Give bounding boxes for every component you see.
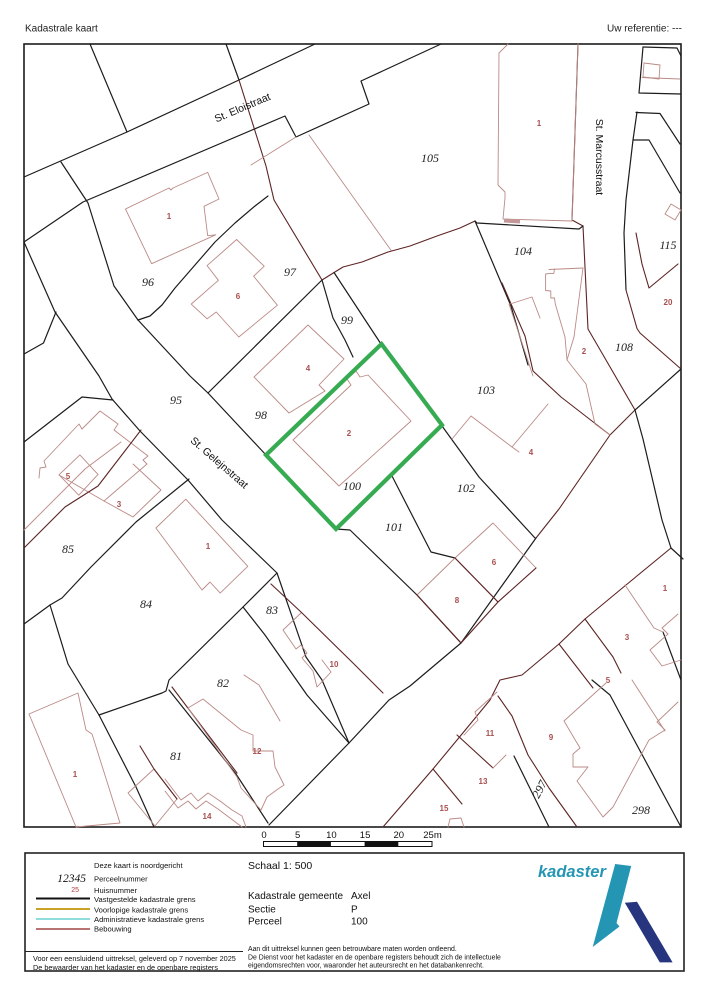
svg-text:115: 115 [659,238,676,252]
svg-text:Administratieve kadastrale gre: Administratieve kadastrale grens [94,915,204,924]
svg-text:108: 108 [615,340,633,354]
svg-text:Deze kaart is noordgericht: Deze kaart is noordgericht [94,861,184,870]
svg-text:Uw referentie: ---: Uw referentie: --- [607,24,682,35]
svg-text:81: 81 [170,749,182,763]
svg-text:15: 15 [360,830,371,841]
svg-text:Bebouwing: Bebouwing [94,925,132,934]
svg-text:P: P [351,905,358,916]
svg-text:298: 298 [632,803,650,817]
svg-text:De Dienst voor het kadaster en: De Dienst voor het kadaster en de openba… [248,955,501,962]
svg-text:96: 96 [142,275,154,289]
svg-text:99: 99 [341,313,353,327]
svg-text:12: 12 [253,747,262,756]
svg-text:3: 3 [117,500,122,509]
svg-text:25: 25 [71,887,79,894]
svg-text:4: 4 [306,364,311,373]
svg-text:10: 10 [326,830,337,841]
svg-text:6: 6 [236,292,241,301]
svg-text:6: 6 [492,558,497,567]
svg-text:Vastgestelde kadastrale grens: Vastgestelde kadastrale grens [94,895,196,904]
svg-text:25m: 25m [423,830,442,841]
svg-text:83: 83 [266,603,278,617]
svg-text:Schaal 1: 500: Schaal 1: 500 [248,860,312,872]
svg-text:8: 8 [455,596,460,605]
svg-text:102: 102 [457,481,475,495]
svg-text:1: 1 [206,542,211,551]
svg-text:2: 2 [582,347,587,356]
svg-text:100: 100 [343,479,361,493]
svg-text:14: 14 [203,812,212,821]
svg-text:20: 20 [664,298,673,307]
svg-text:Perceel: Perceel [248,917,282,928]
svg-text:Huisnummer: Huisnummer [94,886,138,895]
svg-text:Axel: Axel [351,891,370,902]
svg-text:85: 85 [62,542,74,556]
svg-text:98: 98 [255,408,267,422]
svg-text:5: 5 [295,830,300,841]
svg-text:105: 105 [421,151,439,165]
svg-text:2: 2 [347,429,352,438]
svg-text:eigendomsrechten voor, waarond: eigendomsrechten voor, waaronder het aut… [248,963,484,970]
svg-text:10: 10 [330,660,339,669]
svg-text:11: 11 [486,729,495,738]
svg-text:13: 13 [479,777,488,786]
svg-text:Kadastrale kaart: Kadastrale kaart [25,24,98,35]
svg-text:12345: 12345 [57,873,86,885]
svg-text:3: 3 [625,633,630,642]
svg-text:1: 1 [167,212,172,221]
svg-text:101: 101 [385,520,403,534]
svg-text:1: 1 [73,770,78,779]
svg-text:kadaster: kadaster [538,863,607,881]
svg-text:95: 95 [170,393,182,407]
svg-text:St. Marcusstraat: St. Marcusstraat [593,119,605,196]
svg-text:103: 103 [477,383,495,397]
svg-text:9: 9 [549,733,554,742]
svg-text:Kadastrale gemeente: Kadastrale gemeente [248,891,344,902]
svg-text:Aan dit uittreksel kunnen geen: Aan dit uittreksel kunnen geen betrouwba… [248,946,457,953]
svg-text:5: 5 [66,472,71,481]
svg-text:82: 82 [217,676,229,690]
svg-text:297: 297 [529,777,550,800]
svg-text:5: 5 [606,676,611,685]
svg-text:Voor een eensluidend uittrekse: Voor een eensluidend uittreksel, gelever… [33,954,236,963]
svg-text:Perceelnummer: Perceelnummer [94,875,148,884]
svg-text:100: 100 [351,917,368,928]
svg-text:St. Eloistraat: St. Eloistraat [213,91,273,125]
svg-text:Voorlopige kadastrale grens: Voorlopige kadastrale grens [94,906,188,915]
svg-text:De bewaarder van het kadaster: De bewaarder van het kadaster en de open… [33,963,218,972]
svg-text:Sectie: Sectie [248,905,276,916]
svg-text:20: 20 [394,830,405,841]
svg-text:1: 1 [663,584,668,593]
svg-text:104: 104 [514,244,532,258]
svg-text:97: 97 [284,265,297,279]
svg-text:15: 15 [440,804,449,813]
svg-text:0: 0 [261,830,266,841]
svg-text:1: 1 [537,119,542,128]
svg-text:84: 84 [140,597,152,611]
svg-text:4: 4 [529,448,534,457]
svg-text:St. Gelejnstraat: St. Gelejnstraat [188,435,251,492]
